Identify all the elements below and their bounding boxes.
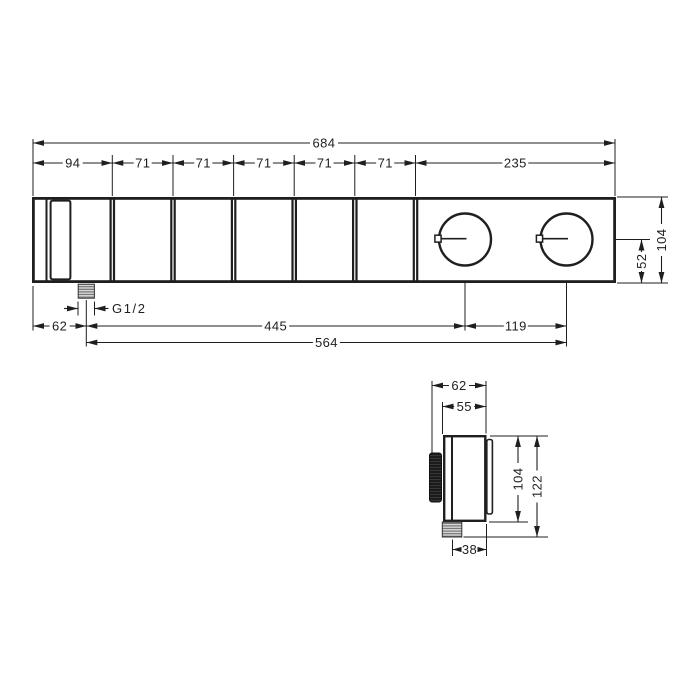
dim-side-height-body-label: 104 (511, 468, 526, 491)
dim-side-height-overall-label: 122 (530, 475, 545, 498)
dim-segment-1-label: 94 (65, 156, 80, 171)
dim-depth-overall: 62 (432, 378, 486, 393)
front-outlet-connector (78, 284, 94, 298)
thermostat-module-dimension-drawing: 684 94 71 71 71 71 71 235 (0, 0, 700, 700)
handle-2-tab (536, 235, 542, 242)
dim-segments: 94 71 71 71 71 71 235 (33, 156, 615, 171)
dim-handle-axis-label: 52 (634, 254, 649, 269)
dim-depth-overall-label: 62 (451, 378, 466, 393)
dim-segment-4-label: 71 (256, 156, 271, 171)
thread-callout: G1/2 (64, 301, 147, 316)
dim-overall-width-label: 684 (313, 136, 336, 151)
dim-outlet-to-handle1-label: 445 (264, 319, 287, 334)
dim-front-height: 104 (654, 197, 669, 283)
dim-depth-body-label: 55 (457, 399, 472, 414)
thread-label: G1/2 (112, 301, 147, 316)
dim-handle-spacing-label: 119 (505, 319, 527, 334)
dim-outlet-offset-label: 62 (52, 319, 67, 334)
front-body (33, 198, 614, 298)
front-body-outline (33, 198, 614, 281)
dim-outlet-from-wall-label: 38 (462, 542, 477, 557)
side-body (430, 436, 493, 537)
dim-segment-2-label: 71 (135, 156, 150, 171)
dim-front-height-label: 104 (654, 229, 669, 252)
dim-segment-5-label: 71 (317, 156, 332, 171)
dim-segment-6-label: 71 (378, 156, 393, 171)
side-outlet-connector (442, 522, 462, 537)
dim-side-height-overall: 122 (530, 436, 545, 537)
dim-outlet-to-handle1: 445 (86, 319, 465, 334)
dim-depth-body: 55 (443, 399, 487, 414)
side-seal-plate (487, 440, 493, 515)
dim-segment-3-label: 71 (196, 156, 211, 171)
dim-outlet-offset: 62 (33, 319, 86, 334)
front-select-plate (51, 201, 71, 280)
dim-outlet-from-wall: 38 (453, 542, 487, 557)
dim-handle-spacing: 119 (465, 319, 567, 334)
handle-1-tab (435, 235, 441, 242)
dim-side-height-body: 104 (511, 436, 526, 522)
dim-handle-axis: 52 (634, 240, 649, 284)
side-view: 62 55 104 122 (430, 378, 549, 557)
dim-outlet-to-handle2: 564 (86, 335, 566, 350)
dim-overall-width: 684 (33, 136, 615, 151)
side-body-outline (444, 436, 485, 521)
side-handle-knob (430, 453, 442, 502)
dim-segment-7-label: 235 (504, 156, 527, 171)
dim-outlet-to-handle2-label: 564 (315, 335, 338, 350)
front-view: 684 94 71 71 71 71 71 235 (33, 136, 669, 351)
technical-drawing-page: 684 94 71 71 71 71 71 235 (0, 0, 700, 700)
